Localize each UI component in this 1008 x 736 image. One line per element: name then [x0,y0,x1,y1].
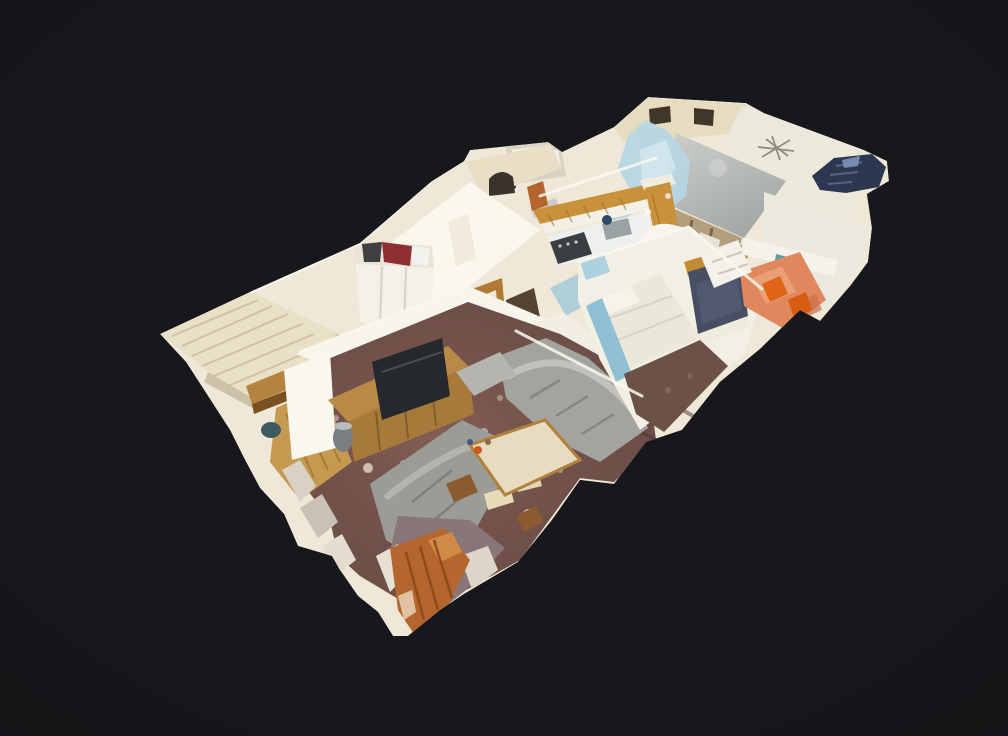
kitchen-pot [602,215,612,225]
table-clutter [474,446,482,454]
wall-column [284,352,336,460]
ceiling-highlight [709,159,727,177]
window-slit [649,106,671,125]
dark-garment [362,242,382,262]
window-slit [694,108,714,126]
arch-opening [489,172,515,196]
viewer-stage [0,0,1008,736]
teal-stool [261,422,281,438]
dollhouse-3d-view[interactable] [0,0,1008,736]
